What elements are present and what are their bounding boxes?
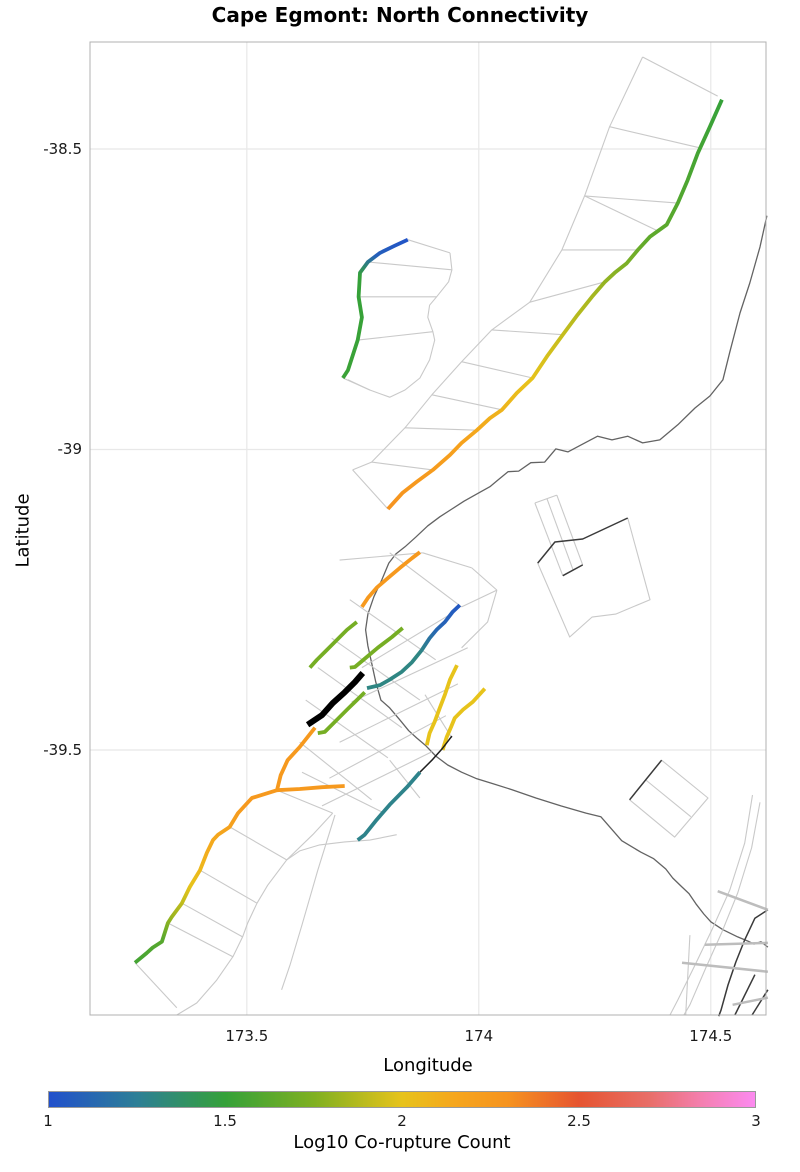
- section-ladder-a-rung-1: [610, 127, 700, 148]
- section-ladder-d-rung-2: [230, 827, 287, 860]
- section-ladder-b-rail: [348, 253, 452, 397]
- cluster-mesh-2: [423, 553, 472, 568]
- y-tick-label: -39.5: [10, 741, 82, 759]
- y-tick-label: -38.5: [10, 140, 82, 158]
- star-strip-left: [535, 503, 563, 576]
- colorbar-tick-label: 1.5: [213, 1112, 237, 1130]
- section-ladder-d-rung-5: [168, 923, 233, 957]
- fault-sw-branch-east: [277, 786, 345, 790]
- colorbar-tick-label: 1: [43, 1112, 53, 1130]
- fault-thin-dark-link: [420, 736, 452, 772]
- section-ladder-a-rung-8: [405, 428, 477, 430]
- x-axis-label: Longitude: [0, 1055, 800, 1076]
- section-ladder-d-rung-4: [182, 903, 243, 937]
- section-ladder-a-rung-9: [372, 462, 433, 470]
- section-ladder-d-rung-3: [200, 870, 257, 903]
- section-ladder-d-rung-1: [277, 790, 333, 813]
- plot-border: [90, 42, 766, 1015]
- fault-cluster-black-thick: [308, 673, 363, 725]
- colorbar-label: Log10 Co-rupture Count: [0, 1132, 800, 1153]
- star-strip-cap: [535, 495, 557, 503]
- figure: Cape Egmont: North Connectivity -38.5-39…: [0, 0, 800, 1172]
- colorbar-tick-label: 2.5: [567, 1112, 591, 1130]
- cluster-mesh-3: [472, 568, 497, 590]
- fault-dark-segment-a: [538, 518, 628, 563]
- cluster-mesh-14: [340, 684, 458, 742]
- x-tick-label: 174: [464, 1027, 493, 1045]
- section-ladder-a-rung-5: [492, 330, 563, 335]
- cluster-mesh-11: [300, 742, 372, 800]
- star-strip-right: [557, 495, 583, 565]
- y-axis-label: Latitude: [13, 486, 34, 576]
- star-strip-mid: [547, 499, 573, 570]
- br-parallelogram-dark-edge: [630, 760, 662, 800]
- x-tick-label: 174.5: [689, 1027, 732, 1045]
- star-big-polygon: [538, 518, 650, 637]
- br-light-vertical: [686, 935, 690, 1015]
- fault-cluster-green-west: [310, 622, 357, 668]
- br-dark-diag-2: [735, 975, 755, 1015]
- cluster-mesh-17: [287, 835, 397, 860]
- coastline: [366, 216, 768, 947]
- section-ladder-b-cap: [343, 378, 370, 390]
- colorbar-gradient: [48, 1091, 756, 1108]
- section-ladder-b-rung-3: [358, 332, 433, 340]
- section-ladder-d-rail: [177, 813, 333, 1015]
- br-gray-thick-1: [705, 943, 768, 945]
- cluster-mesh-12: [362, 612, 455, 668]
- fault-dark-segment-b: [563, 565, 583, 576]
- section-ladder-a-rail: [353, 57, 643, 470]
- br-gray-thick-3: [733, 998, 768, 1005]
- section-ladder-a-rung-6: [462, 362, 533, 378]
- colorbar-tick-label: 3: [751, 1112, 761, 1130]
- fault-ne-long: [388, 100, 722, 509]
- section-ladder-b-rung-1: [368, 262, 452, 270]
- section-ladder-a-rung-7: [432, 395, 502, 410]
- section-ladder-a-top: [643, 57, 718, 96]
- section-ladder-d-rail-2: [282, 815, 335, 990]
- section-ladder-d-cap: [135, 963, 177, 1008]
- colorbar-tick-label: 2: [397, 1112, 407, 1130]
- section-ladder-a-cap: [353, 470, 388, 509]
- section-ladder-b-top: [408, 240, 450, 253]
- x-tick-label: 173.5: [225, 1027, 268, 1045]
- y-tick-label: -39: [10, 440, 82, 458]
- br-gray-thick-2: [682, 963, 768, 972]
- fault-teal-south: [358, 772, 420, 840]
- cluster-mesh-15: [329, 716, 446, 779]
- fault-nw-small: [343, 240, 408, 378]
- map-plot-area: [0, 0, 800, 1040]
- br-parallelogram-inner: [646, 780, 691, 817]
